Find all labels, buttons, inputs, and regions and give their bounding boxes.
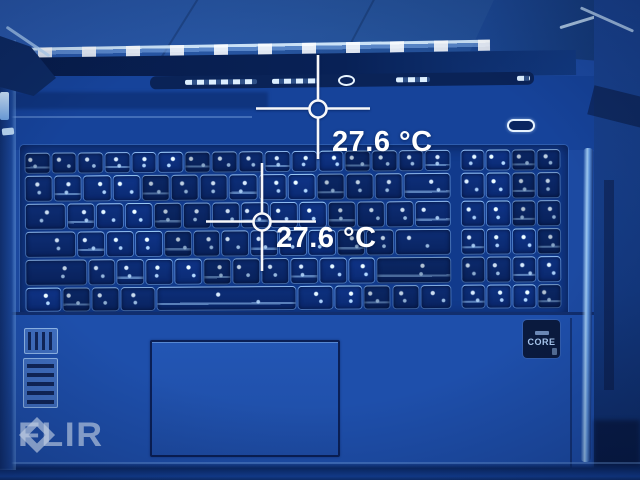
vent-dash [517,76,530,81]
keyboard-key [393,286,419,308]
keyboard-key [233,259,259,283]
label-sticker [24,328,58,354]
keyboard-key [487,257,509,281]
spot-temperature-label-2: 27.6 °C [276,224,377,253]
keyboard-key [488,285,510,307]
keyboard-key [487,150,509,169]
keyboard-key [242,203,268,227]
keyboard-key [513,285,535,307]
vent-dash [272,78,318,84]
keyboard-key [512,173,534,197]
keyboard-key [222,231,248,255]
keyboard-key [194,232,220,256]
keyboard-key [136,232,162,256]
keyboard-key [92,288,118,310]
vent-ring [338,75,355,86]
keyboard-key [118,260,144,284]
keyboard-key [165,232,191,256]
keyboard-key [251,231,277,255]
keyboard-key [26,177,52,201]
keyboard-key [349,258,375,282]
keyboard-key [113,176,139,200]
keyboard-key [462,286,484,308]
keyboard-key [376,174,402,198]
keyboard-key [298,287,332,309]
keyboard-key [335,287,361,309]
keyboard-key [106,153,130,172]
vent-dash [185,79,257,85]
keyboard-key [204,259,230,283]
keyboard-key [538,285,560,307]
laptop-left-edge [0,40,16,470]
keyboard-key [512,229,534,253]
spot-temperature-label-1: 27.6 °C [332,128,433,157]
keyboard-key [142,176,168,200]
background-streak [604,180,614,390]
keyboard-key [292,152,316,171]
keyboard-key [320,259,346,283]
keyboard-key [538,257,560,281]
keyboard-key [416,202,450,226]
keyboard-key [487,173,509,197]
keyboard-key [201,175,227,199]
touchpad [150,340,340,457]
keyboard-key [26,205,65,229]
keyboard-key [78,232,104,256]
keyboard-key [364,286,390,308]
keyboard-key [230,175,256,199]
keyboard-key [68,204,94,228]
side-port [2,127,15,135]
label-sticker [23,358,58,408]
keyboard-key [396,230,450,254]
background-streak [587,85,640,129]
keyboard-key [155,204,181,228]
keyboard-key [461,151,483,170]
keyboard-key [107,232,133,256]
laptop-front-edge [0,462,640,480]
intel-logo-mark [535,331,549,335]
sticker-barcode [27,362,54,404]
keyboard-key [405,174,450,198]
keyboard-key [52,154,76,173]
keyboard-key [184,204,210,228]
keyboard-key [147,260,173,284]
palm-seam [0,312,604,315]
keyboard-key [259,175,285,199]
power-button [507,119,535,132]
keyboard-key [26,289,60,311]
keyboard-key [239,152,263,171]
keyboard-key [172,176,198,200]
cpu-badge-label: CORE [527,338,555,347]
keyboard-key [55,176,81,200]
flir-thermal-image: CORE 27.6 °C 27.6 °C [0,0,640,480]
keyboard-key [79,153,103,172]
keyboard-key [212,152,236,171]
keyboard-key [26,233,75,257]
background-right [594,0,640,480]
keyboard-key [158,287,296,310]
keyboard-key [487,229,509,253]
keyboard-key [84,176,110,200]
vent-dash [396,77,430,82]
deck-shadow [0,92,268,109]
keyboard-key [97,204,123,228]
keyboard-key [186,153,210,172]
keyboard-key [159,153,183,172]
keyboard-key [538,201,560,225]
flir-watermark: FLIR [18,418,100,452]
keyboard-key [132,153,156,172]
keyboard-key [512,150,534,169]
keyboard-key [512,201,534,225]
palm-seam-vertical [570,318,572,476]
keyboard-key [288,175,314,199]
keyboard-key [126,204,152,228]
keyboard-key [26,260,86,284]
keyboard-key [387,202,413,226]
keyboard-key [537,173,559,197]
keyboard-key [317,175,343,199]
keyboard-key [347,174,373,198]
side-port [0,92,9,120]
deck-seam [0,116,252,118]
keyboard-key [462,202,484,226]
cpu-badge-corner-mark [552,348,557,355]
keyboard-key [89,260,115,284]
sticker-barcode [28,332,54,350]
keyboard-key [175,260,201,284]
keyboard-key [462,174,484,198]
keyboard-key [213,203,239,227]
intel-core-sticker: CORE [523,320,560,358]
keyboard-key [291,259,317,283]
keyboard-key [462,230,484,254]
keyboard-key [63,288,89,310]
keyboard-key [262,259,288,283]
keyboard-key [378,258,451,283]
keyboard-key [462,258,484,282]
keyboard-key [537,150,559,169]
keyboard-key [538,229,560,253]
keyboard-key [513,257,535,281]
keyboard-key [266,152,290,171]
keyboard-key [487,201,509,225]
keyboard-key [121,288,155,310]
keyboard-key [25,154,49,173]
flir-wordmark: FLIR [18,418,104,452]
keyboard-key [422,286,451,308]
